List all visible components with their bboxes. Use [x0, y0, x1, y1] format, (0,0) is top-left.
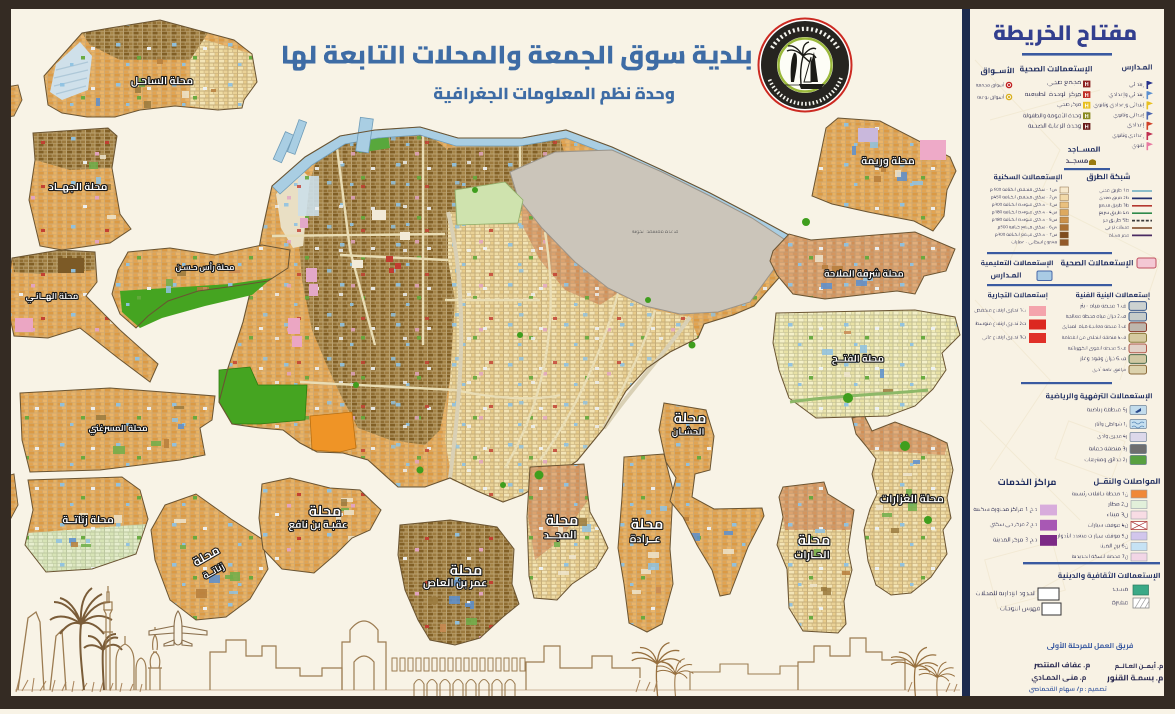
svg-text:H: H — [1085, 93, 1089, 99]
svg-text:H: H — [1085, 82, 1089, 88]
svg-text:H: H — [1085, 125, 1089, 131]
svg-text:H: H — [1085, 103, 1089, 109]
svg-text:H: H — [1085, 114, 1089, 120]
